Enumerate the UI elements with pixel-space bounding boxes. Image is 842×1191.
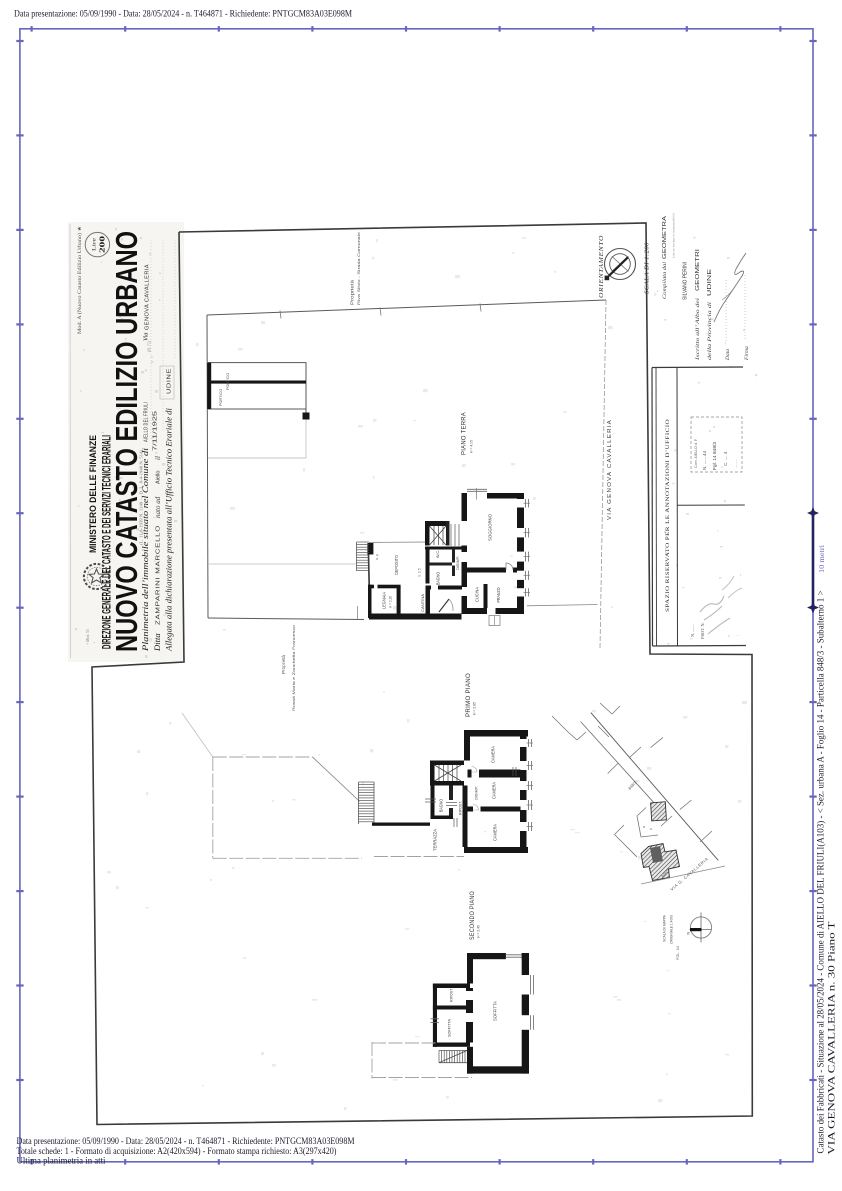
svg-text:(che ne assume la responsabili: (che ne assume la responsabilità) xyxy=(672,213,676,258)
svg-text:il: il xyxy=(154,456,162,460)
svg-text:CANTINA: CANTINA xyxy=(420,594,425,612)
svg-text:PRIMO PIANO: PRIMO PIANO xyxy=(465,673,472,717)
svg-text:CUCINA: CUCINA xyxy=(475,587,480,602)
svg-text:SCALA DI 1:200: SCALA DI 1:200 xyxy=(644,241,651,294)
svg-text:Ultima planimetria in atti: Ultima planimetria in atti xyxy=(17,1157,106,1167)
svg-text:GEOMETRI: GEOMETRI xyxy=(695,248,701,291)
svg-text:Proprietà: Proprietà xyxy=(350,279,355,305)
svg-text:Mod. A (Nuovo Catasto Edilizi: Mod. A (Nuovo Catasto Edilizio Urbano) ★ xyxy=(77,225,83,334)
svg-text:ORIENTAMENTO: ORIENTAMENTO xyxy=(598,235,605,298)
svg-text:nato ad: nato ad xyxy=(154,496,162,518)
svg-text:BAGNO: BAGNO xyxy=(439,798,444,812)
svg-text:N: N xyxy=(687,932,691,935)
svg-text:Ditta: Ditta xyxy=(152,633,162,652)
svg-text:DEPOSITO: DEPOSITO xyxy=(394,555,399,575)
svg-text:Allegata alla dichiarazione pr: Allegata alla dichiarazione presentata a… xyxy=(164,407,174,652)
svg-text:GENOVA CAVALLERIA: GENOVA CAVALLERIA xyxy=(145,264,151,330)
svg-text:SOFFITTA: SOFFITTA xyxy=(447,1019,452,1037)
svg-text:........: ........ xyxy=(733,459,738,468)
svg-text:Catasto dei Fabbricati - Situa: Catasto dei Fabbricati - Situazione al 2… xyxy=(816,591,827,1154)
svg-text:Compilata dal: Compilata dal xyxy=(662,261,668,299)
svg-text:LEGNAIA: LEGNAIA xyxy=(382,592,387,609)
svg-text:DISIMP.: DISIMP. xyxy=(475,786,479,800)
svg-text:GEOMETRA: GEOMETRA xyxy=(662,216,668,259)
svg-text:UDINE: UDINE xyxy=(167,368,173,394)
svg-text:DISIMP.: DISIMP. xyxy=(456,556,460,570)
svg-text:Data: Data xyxy=(725,349,731,361)
svg-text:FGL. 14: FGL. 14 xyxy=(676,946,680,960)
svg-text:PROT. N.: PROT. N. xyxy=(700,622,705,639)
svg-text:7/11/1925: 7/11/1925 xyxy=(153,411,159,451)
svg-text:RIPOST.: RIPOST. xyxy=(459,801,463,815)
svg-text:Proprietà: Proprietà xyxy=(281,654,286,674)
svg-text:SOFFITTA: SOFFITTA xyxy=(493,1001,498,1021)
svg-text:PIANO TERRA: PIANO TERRA xyxy=(461,411,468,455)
svg-text:Iscritto all’ Albo dei: Iscritto all’ Albo dei xyxy=(695,297,701,361)
svg-text:Riva Silvio - Strada Comunale: Riva Silvio - Strada Comunale xyxy=(357,232,361,305)
svg-text:CAMERA: CAMERA xyxy=(492,782,497,799)
svg-text:C. .... 4: C. .... 4 xyxy=(723,451,728,466)
svg-text:H = 2.45: H = 2.45 xyxy=(477,925,481,938)
svg-text:PRANZO: PRANZO xyxy=(496,587,501,603)
svg-text:Data presentazione: 05/09/1990: Data presentazione: 05/09/1990 - Data: 2… xyxy=(14,10,352,20)
svg-text:H = 2.85: H = 2.85 xyxy=(473,702,477,715)
svg-text:200: 200 xyxy=(98,236,107,253)
svg-text:b: b xyxy=(649,828,653,830)
svg-text:SPAZIO RISERVATO PER LE ANNOTA: SPAZIO RISERVATO PER LE ANNOTAZIONI D’UF… xyxy=(665,419,671,612)
svg-text:Aiello: Aiello xyxy=(156,471,162,484)
svg-text:a: a xyxy=(642,826,646,828)
svg-text:MINISTERO DELLE FINANZE: MINISTERO DELLE FINANZE xyxy=(88,435,99,553)
svg-text:+ Mod. 55: + Mod. 55 xyxy=(86,629,90,645)
svg-text:NUOVO CATASTO EDILIZIO URBANO: NUOVO CATASTO EDILIZIO URBANO xyxy=(109,231,144,652)
svg-text:VIA GENOVA CAVALLERIA: VIA GENOVA CAVALLERIA xyxy=(607,419,613,520)
svg-text:Planimetria dell’immobile si: Planimetria dell’immobile situato nel Co… xyxy=(140,447,150,652)
svg-text:Data presentazione: 05/09/1990: Data presentazione: 05/09/1990 - Data: 2… xyxy=(17,1137,355,1147)
svg-text:W.C.: W.C. xyxy=(436,550,440,558)
svg-text:SOGGIORNO: SOGGIORNO xyxy=(488,514,493,541)
svg-text:Com. AIELLO d. F.: Com. AIELLO d. F. xyxy=(694,438,698,468)
svg-text:Totale schede: 1 - Formato di: Totale schede: 1 - Formato di acquisizio… xyxy=(17,1146,337,1157)
svg-text:ORIGINALE 1:4000: ORIGINALE 1:4000 xyxy=(670,915,674,944)
svg-text:Fgl. 14 848/3: Fgl. 14 848/3 xyxy=(712,442,718,470)
svg-text:BAGNO: BAGNO xyxy=(436,571,441,585)
svg-text:della Provincia di: della Provincia di xyxy=(707,301,713,360)
svg-text:a. p.: a. p. xyxy=(375,553,379,560)
svg-text:10 metri: 10 metri xyxy=(817,545,826,573)
svg-text:PORTICO: PORTICO xyxy=(219,389,223,406)
svg-text:PORTICO: PORTICO xyxy=(226,373,230,390)
svg-text:Firma: Firma xyxy=(744,346,750,361)
svg-text:CAMERA: CAMERA xyxy=(493,824,498,841)
svg-text:Rossit Maria e Zanchetta Franc: Rossit Maria e Zanchetta Francesco xyxy=(292,625,296,711)
svg-text:SECONDO PIANO: SECONDO PIANO xyxy=(469,891,476,940)
svg-text:CAMERA: CAMERA xyxy=(491,746,496,763)
svg-text:RIPOST.: RIPOST. xyxy=(449,988,454,1002)
svg-text:Via: Via xyxy=(143,332,150,341)
svg-text:ZAMPARINI MARCELLO: ZAMPARINI MARCELLO xyxy=(156,525,162,625)
svg-text:N. .......: N. ....... xyxy=(690,625,695,637)
svg-text:N. ...... 44: N. ...... 44 xyxy=(702,450,707,470)
svg-text:n. 2.5: n. 2.5 xyxy=(418,568,422,577)
svg-text:H = 2.20: H = 2.20 xyxy=(389,596,393,608)
svg-text:UDINE: UDINE xyxy=(707,268,713,296)
svg-text:H = 4.05: H = 4.05 xyxy=(470,440,474,453)
svg-text:SILVANO PERINI: SILVANO PERINI xyxy=(683,262,689,300)
svg-text:VIA GENOVA CAVALLERIA n. 30 Pi: VIA GENOVA CAVALLERIA n. 30 Piano T xyxy=(828,921,838,1154)
svg-text:TERRAZZA: TERRAZZA xyxy=(433,829,438,851)
svg-text:AIELLO DEL FRIULI: AIELLO DEL FRIULI xyxy=(144,402,150,442)
svg-text:SCALA DI MAPPA: SCALA DI MAPPA xyxy=(663,915,667,942)
